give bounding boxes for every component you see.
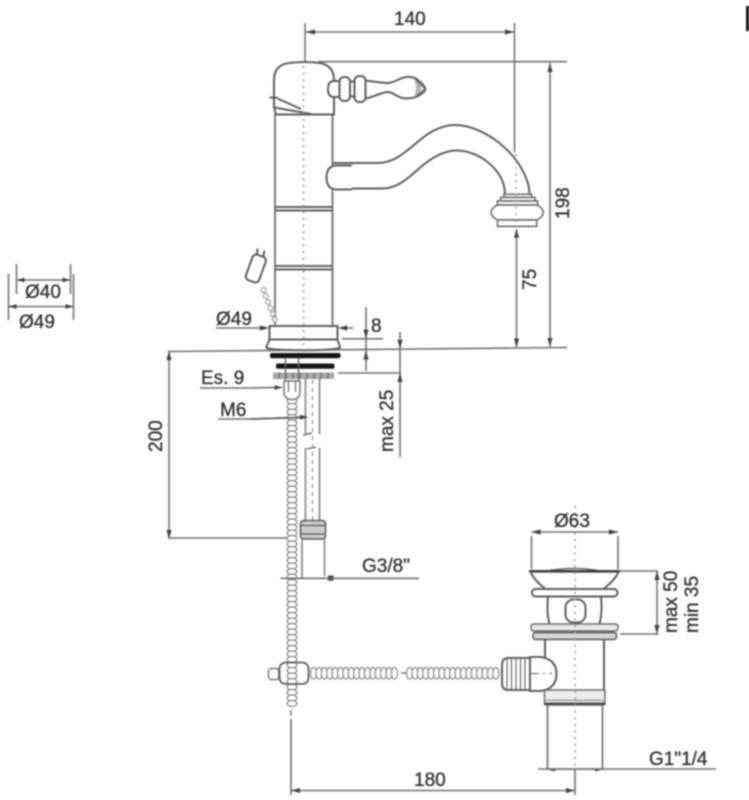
svg-text:200: 200 — [146, 420, 167, 452]
svg-text:180: 180 — [414, 770, 446, 791]
svg-text:Es. 9: Es. 9 — [201, 368, 244, 389]
svg-text:Ø49: Ø49 — [216, 309, 252, 330]
svg-text:min 35: min 35 — [682, 576, 703, 633]
svg-text:Ø49: Ø49 — [19, 312, 55, 333]
svg-text:max 50: max 50 — [661, 571, 682, 633]
svg-text:8: 8 — [371, 316, 382, 337]
svg-text:75: 75 — [520, 269, 541, 290]
svg-text:140: 140 — [394, 9, 426, 30]
svg-text:198: 198 — [553, 187, 574, 219]
svg-text:Ø63: Ø63 — [554, 511, 590, 532]
svg-text:Ø40: Ø40 — [25, 282, 61, 303]
svg-text:M6: M6 — [220, 400, 246, 421]
svg-text:max 25: max 25 — [377, 390, 398, 452]
svg-text:G3/8": G3/8" — [362, 556, 410, 577]
svg-text:G1"1/4: G1"1/4 — [649, 749, 708, 770]
